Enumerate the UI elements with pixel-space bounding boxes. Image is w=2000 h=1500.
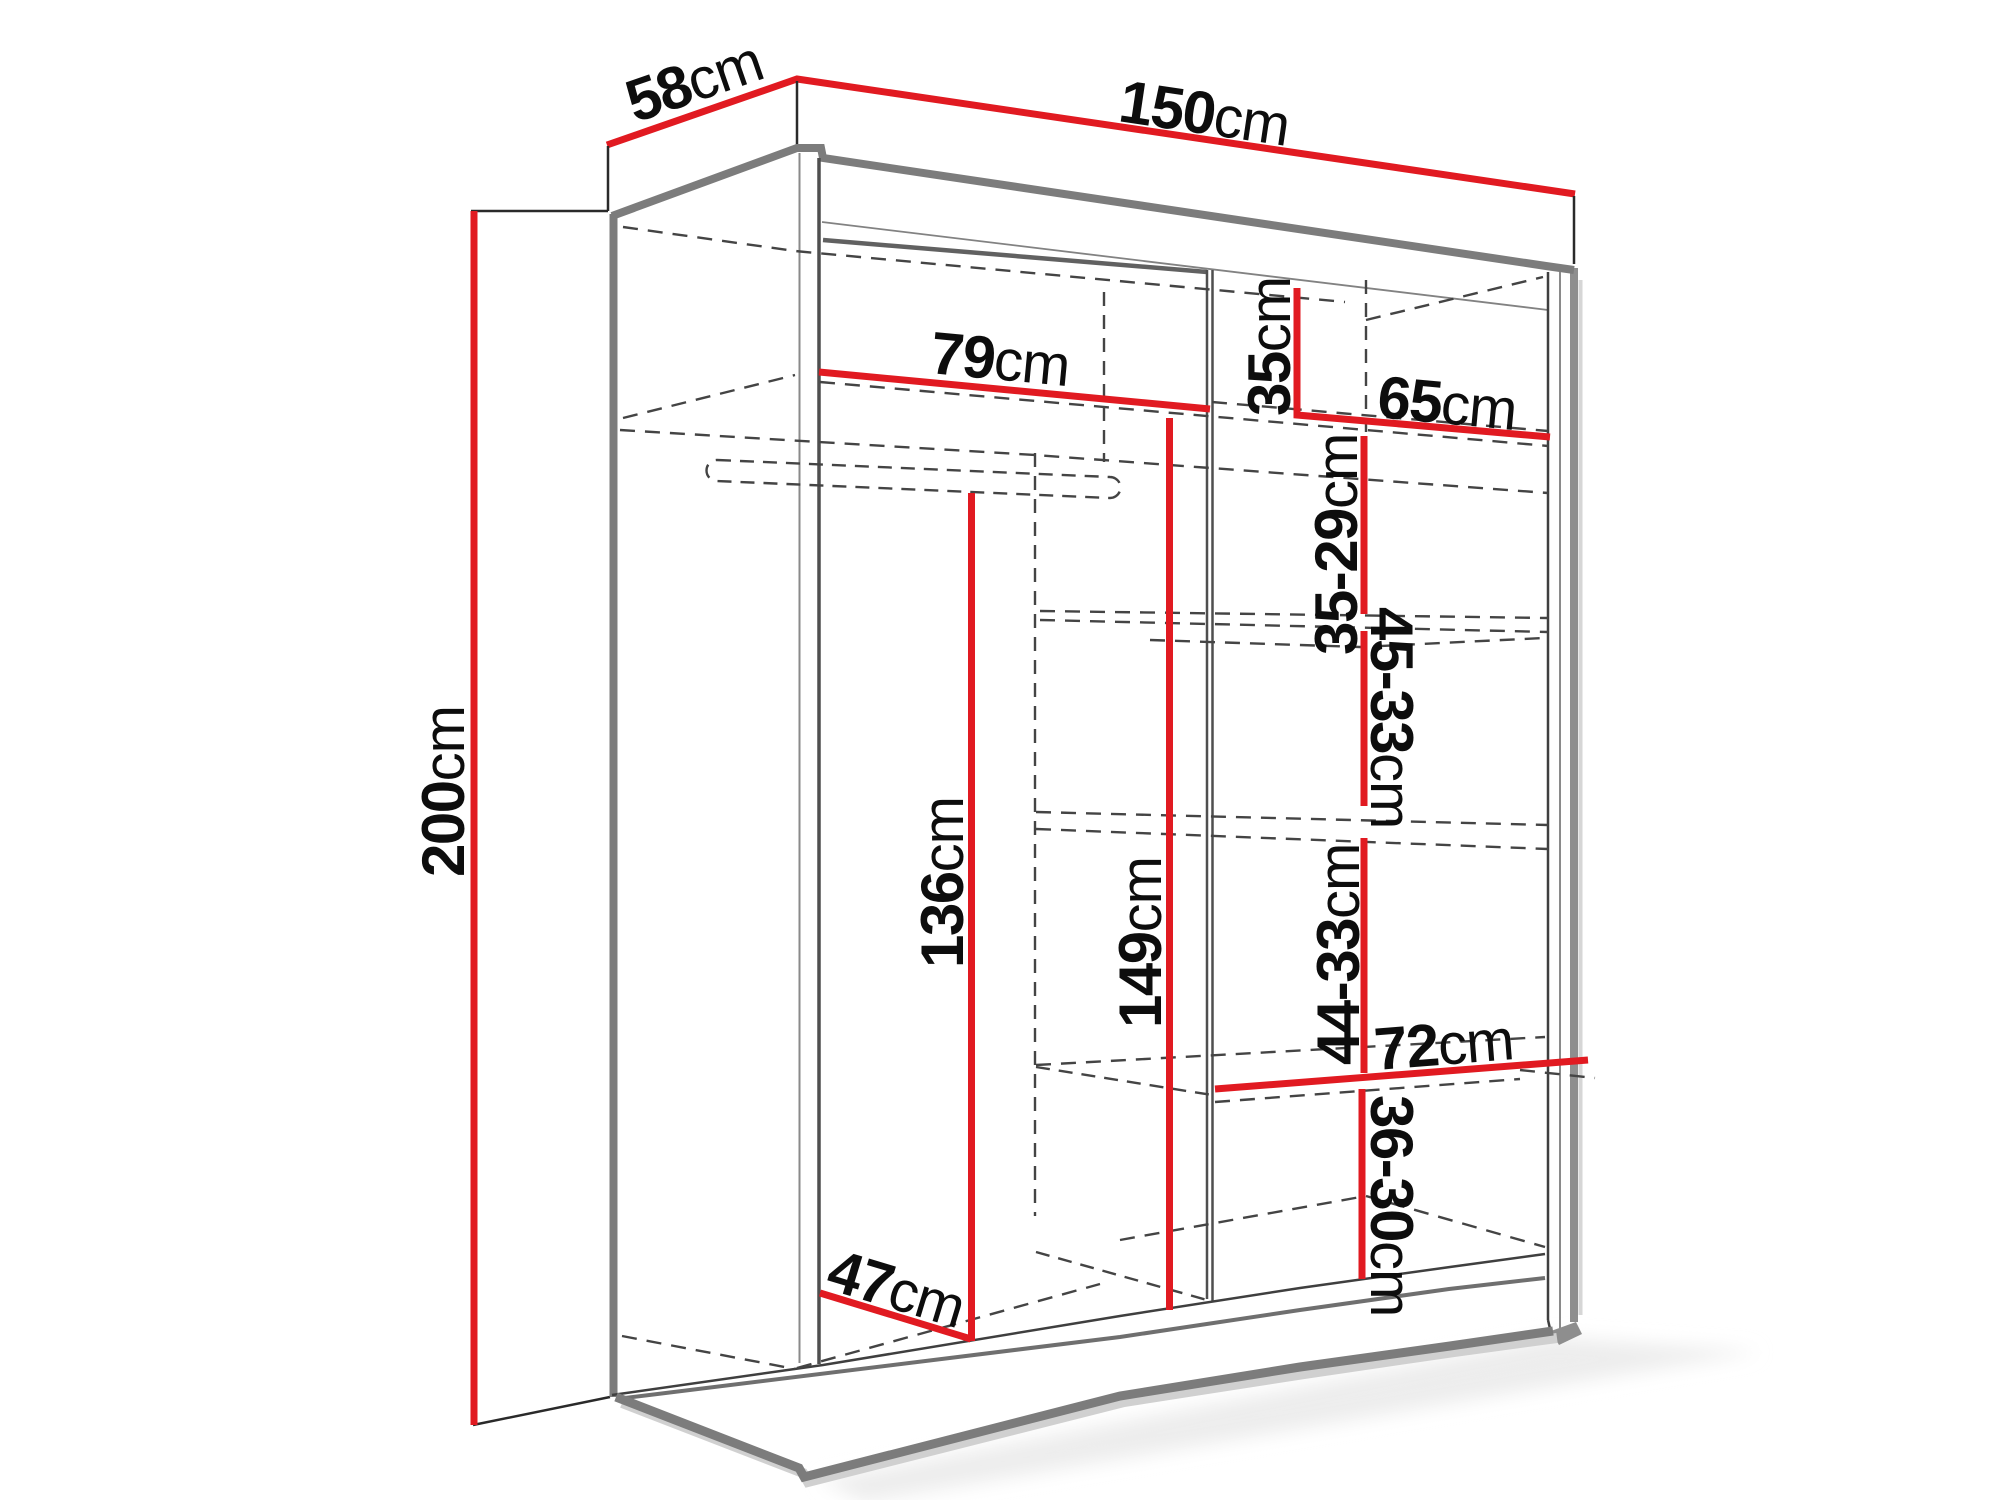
svg-text:35cm: 35cm bbox=[1236, 277, 1303, 416]
svg-text:136cm: 136cm bbox=[909, 797, 976, 968]
svg-text:149cm: 149cm bbox=[1107, 857, 1174, 1028]
svg-text:200cm: 200cm bbox=[410, 706, 477, 877]
svg-text:45-33cm: 45-33cm bbox=[1358, 607, 1425, 828]
svg-text:36-30cm: 36-30cm bbox=[1358, 1095, 1425, 1316]
svg-text:44-33cm: 44-33cm bbox=[1305, 844, 1372, 1065]
svg-text:72cm: 72cm bbox=[1372, 1005, 1516, 1083]
